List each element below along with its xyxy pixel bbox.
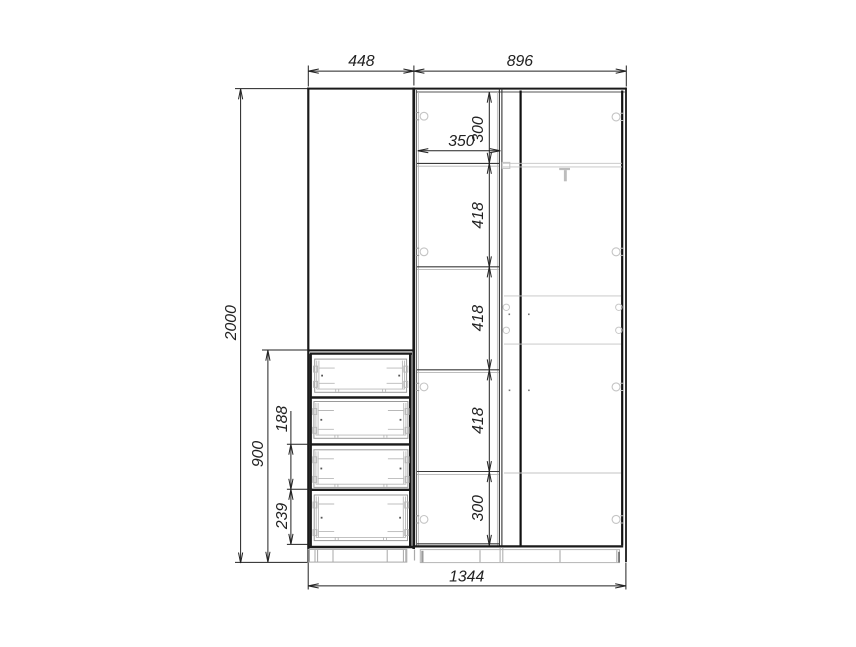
svg-text:239: 239 [274, 503, 291, 531]
svg-text:418: 418 [470, 305, 487, 332]
svg-text:1344: 1344 [449, 568, 484, 585]
svg-text:2000: 2000 [223, 305, 240, 341]
svg-text:300: 300 [470, 495, 487, 522]
svg-text:896: 896 [507, 53, 534, 70]
svg-text:300: 300 [470, 116, 487, 143]
svg-text:418: 418 [470, 407, 487, 434]
svg-text:418: 418 [470, 202, 487, 229]
svg-text:448: 448 [348, 53, 375, 70]
svg-text:188: 188 [274, 406, 291, 433]
svg-text:900: 900 [250, 441, 267, 468]
